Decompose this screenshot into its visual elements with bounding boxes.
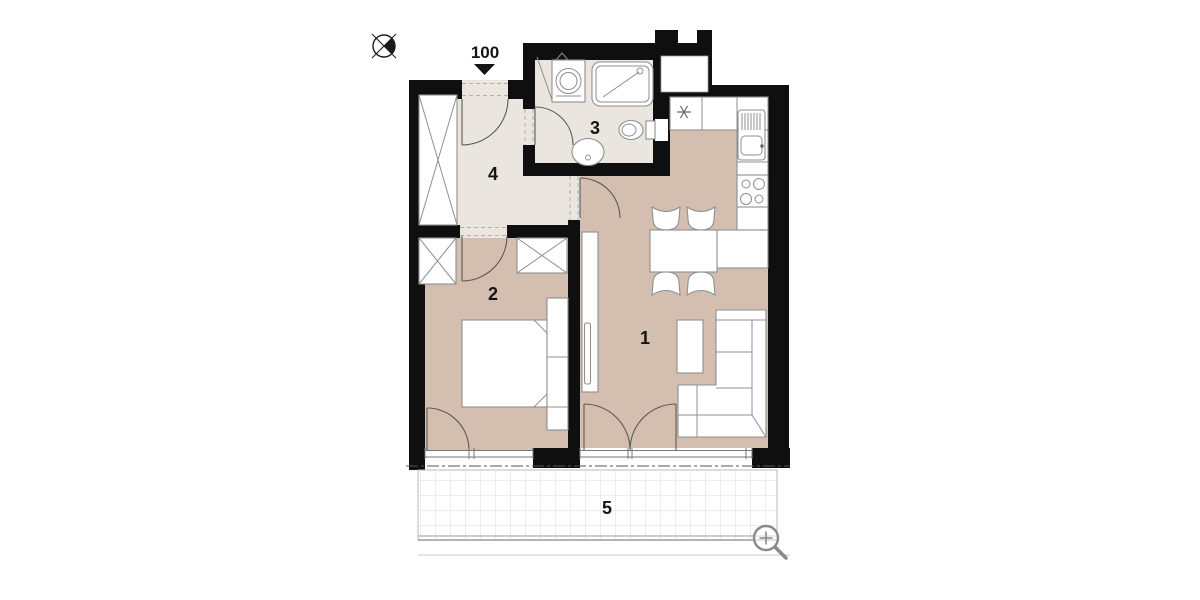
hall-wardrobe [419,95,457,225]
headboard-strip [547,298,568,430]
toilet-niche [655,119,668,141]
bedroom-top-wall-left [409,225,460,238]
tv-cabinet [582,232,598,392]
room-label-living: 1 [640,328,650,348]
entrance-arrow-icon [474,64,495,75]
coffee-table [677,320,703,373]
entrance-number-label: 100 [471,43,499,62]
entrance-threshold [462,80,508,99]
room-label-hall: 4 [488,164,498,184]
entrance-marker: 100 [471,43,499,75]
north-compass-icon [372,34,396,58]
toilet [619,121,655,140]
cooktop [737,175,768,207]
right-wall [768,85,789,468]
bathroom-bottom-wall [533,163,670,176]
room-label-bathroom: 3 [590,118,600,138]
bedroom-wardrobe-left [419,238,456,284]
dining-table [650,230,717,272]
terrace [406,466,790,555]
floor-plan-canvas: 1 2 3 4 5 100 [0,0,1200,600]
zoom-icon[interactable] [754,526,786,558]
bathroom-sink [572,139,604,166]
room-label-bedroom: 2 [488,284,498,304]
window-band-living [580,448,752,459]
bottom-wall-middle [533,448,580,468]
bedroom-wardrobe-right [517,238,567,273]
bedroom-living-wall [568,220,580,450]
shaft-opening [661,56,708,92]
shaft-notch [678,30,697,43]
floor-plan-svg: 1 2 3 4 5 100 [0,0,1200,600]
bathroom-top-wall [523,43,655,60]
room-label-terrace: 5 [602,498,612,518]
shower [592,62,653,106]
kitchen-sink [738,110,765,160]
tv [585,323,591,384]
bedroom-door-threshold [460,225,507,238]
